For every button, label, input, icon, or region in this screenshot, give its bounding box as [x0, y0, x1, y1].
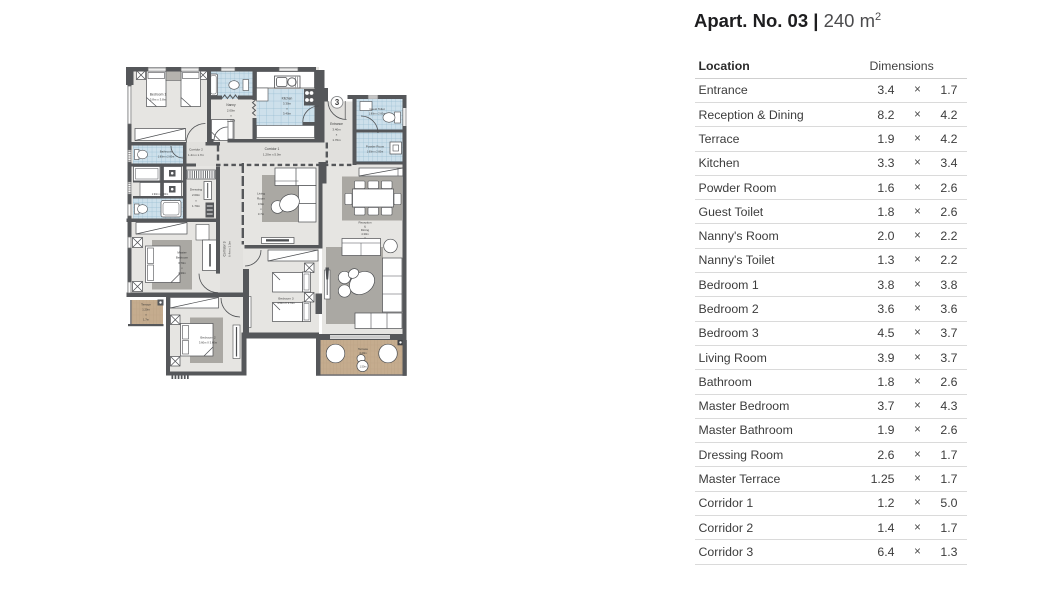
svg-text:1.80m x 2.60m: 1.80m x 2.60m	[369, 113, 386, 116]
svg-text:Guest Toilet: Guest Toilet	[369, 107, 384, 111]
svg-text:4.30m: 4.30m	[361, 232, 369, 236]
svg-text:1.4m x 1.7m: 1.4m x 1.7m	[188, 153, 204, 157]
svg-text:3: 3	[335, 98, 340, 107]
svg-text:4.30m: 4.30m	[178, 271, 186, 275]
svg-text:3.70m: 3.70m	[178, 261, 186, 265]
svg-text:Dressing: Dressing	[190, 188, 202, 192]
svg-text:1.7m: 1.7m	[143, 318, 150, 322]
svg-text:6.4m x 1.3m: 6.4m x 1.3m	[228, 240, 232, 256]
svg-text:4.20m: 4.20m	[359, 351, 367, 355]
svg-text:Bedroom: Bedroom	[176, 256, 189, 260]
svg-text:Bedroom 2: Bedroom 2	[200, 336, 215, 340]
svg-text:3.7m: 3.7m	[258, 212, 265, 216]
svg-text:Corridor 2: Corridor 2	[189, 148, 203, 152]
svg-text:Entrance: Entrance	[330, 122, 343, 126]
svg-text:Kitchen: Kitchen	[282, 97, 293, 101]
svg-text:3.40m: 3.40m	[332, 128, 341, 132]
svg-text:2.60m: 2.60m	[192, 193, 201, 197]
svg-text:3.40m: 3.40m	[283, 112, 292, 116]
svg-text:Bathroom: Bathroom	[160, 150, 173, 154]
svg-text:1.70m: 1.70m	[192, 204, 201, 208]
svg-text:Terrace: Terrace	[141, 303, 151, 307]
svg-text:Bedroom 1: Bedroom 1	[150, 93, 167, 97]
svg-text:Room: Room	[257, 197, 266, 201]
svg-text:1.70m: 1.70m	[332, 138, 341, 142]
svg-text:Living: Living	[257, 192, 265, 196]
svg-text:Powder Room: Powder Room	[366, 145, 385, 149]
svg-text:Corridor 3: Corridor 3	[223, 241, 227, 256]
svg-text:3.30m: 3.30m	[283, 102, 292, 106]
svg-text:Corridor 1: Corridor 1	[265, 147, 280, 151]
svg-text:3.60m X 3.60m: 3.60m X 3.60m	[199, 341, 218, 345]
svg-text:1.20m x 5.0m: 1.20m x 5.0m	[263, 153, 282, 157]
svg-text:3.8m x 3.8m: 3.8m x 3.8m	[150, 98, 167, 102]
svg-text:2.20m: 2.20m	[227, 119, 236, 123]
svg-text:1.20m: 1.20m	[142, 308, 150, 312]
svg-text:Dining: Dining	[361, 228, 370, 232]
svg-text:4.50m X 3.70m: 4.50m X 3.70m	[277, 301, 295, 305]
svg-text:Terrace: Terrace	[358, 347, 368, 351]
svg-text:3.9m: 3.9m	[258, 202, 265, 206]
svg-text:1.60m x 2.60m: 1.60m x 2.60m	[367, 151, 384, 154]
svg-text:1.90m x 2.60m: 1.90m x 2.60m	[152, 193, 169, 196]
svg-text:Bedroom 3: Bedroom 3	[278, 297, 293, 301]
svg-text:2.00m: 2.00m	[227, 109, 236, 113]
svg-text:Nanny: Nanny	[226, 103, 236, 107]
svg-text:Master: Master	[177, 251, 186, 255]
svg-text:1.50m: 1.50m	[360, 366, 367, 369]
svg-text:1.80m x 2.60m: 1.80m x 2.60m	[158, 156, 175, 159]
